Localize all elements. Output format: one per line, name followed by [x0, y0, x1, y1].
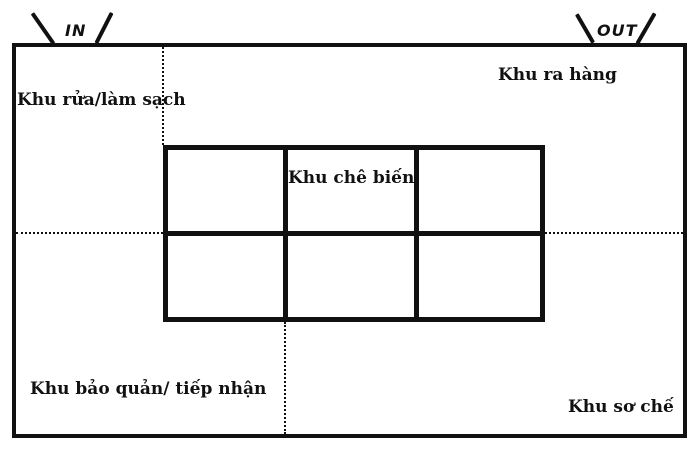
area-label-processing: Khu chê biến	[288, 168, 414, 188]
door-out-swing-right-icon	[636, 12, 657, 44]
floor-plan: IN OUT Khu chê biến Khu rửa/làm sạch Khu…	[0, 0, 700, 452]
table-cell-processing: Khu chê biến	[288, 150, 414, 231]
zone-divider-horizontal-right	[545, 232, 683, 234]
work-tables-grid: Khu chê biến	[163, 145, 545, 322]
table-cell	[288, 236, 414, 317]
door-in-swing-right-icon	[95, 12, 114, 44]
area-label-washing: Khu rửa/làm sạch	[17, 90, 186, 110]
table-cell	[419, 236, 540, 317]
door-in-swing-left-icon	[31, 12, 55, 45]
zone-divider-vertical-bottom	[284, 322, 286, 434]
door-out-label: OUT	[597, 21, 638, 40]
zone-divider-horizontal-left	[16, 232, 163, 234]
door-in-label: IN	[65, 21, 86, 40]
door-out-swing-left-icon	[575, 13, 595, 44]
area-label-prep: Khu sơ chế	[568, 397, 674, 417]
area-label-dispatch: Khu ra hàng	[498, 65, 617, 85]
table-cell	[419, 150, 540, 231]
table-cell	[168, 236, 283, 317]
area-label-storage-receiving: Khu bảo quản/ tiếp nhận	[30, 379, 266, 399]
table-cell	[168, 150, 283, 231]
